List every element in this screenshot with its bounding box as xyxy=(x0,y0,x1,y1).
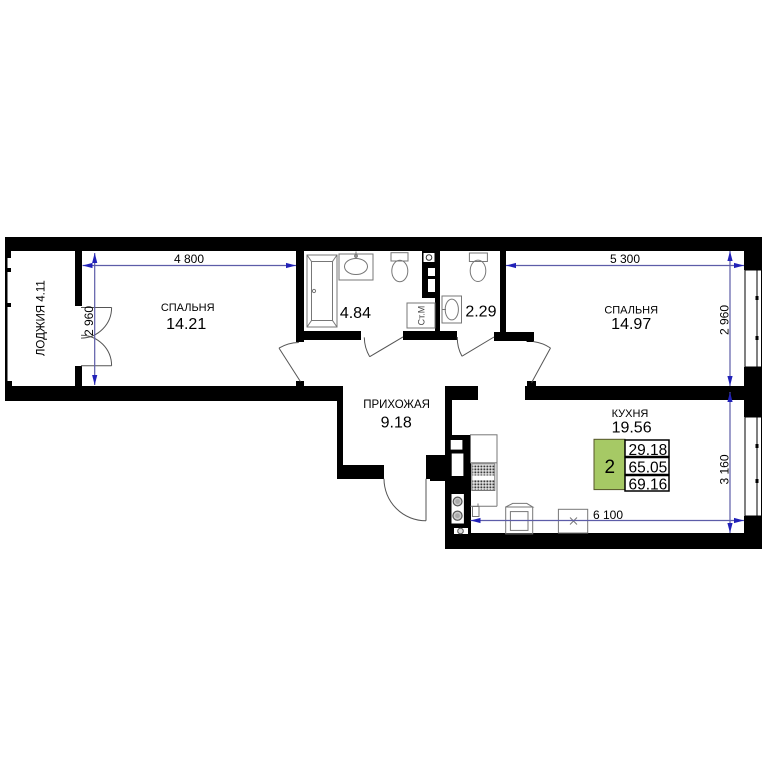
svg-text:2.29: 2.29 xyxy=(465,304,496,321)
svg-text:2: 2 xyxy=(605,457,616,478)
svg-text:2 960: 2 960 xyxy=(82,306,96,336)
svg-text:Ст.М: Ст.М xyxy=(417,306,427,326)
svg-text:14.97: 14.97 xyxy=(611,316,651,333)
svg-text:4.84: 4.84 xyxy=(340,305,371,322)
svg-text:9.18: 9.18 xyxy=(381,414,412,431)
svg-text:2 960: 2 960 xyxy=(718,305,732,335)
svg-text:14.21: 14.21 xyxy=(166,316,206,333)
svg-text:5 300: 5 300 xyxy=(610,252,640,266)
svg-text:6 100: 6 100 xyxy=(593,508,623,522)
svg-text:3 160: 3 160 xyxy=(718,454,732,484)
svg-text:29.18: 29.18 xyxy=(629,442,668,459)
svg-text:4 800: 4 800 xyxy=(174,252,204,266)
svg-text:СПАЛЬНЯ: СПАЛЬНЯ xyxy=(161,302,215,314)
svg-text:65.05: 65.05 xyxy=(629,460,668,477)
svg-text:69.16: 69.16 xyxy=(629,477,668,494)
svg-text:СПАЛЬНЯ: СПАЛЬНЯ xyxy=(604,304,658,316)
svg-text:ПРИХОЖАЯ: ПРИХОЖАЯ xyxy=(363,399,430,411)
svg-text:ЛОДЖИЯ 4.11: ЛОДЖИЯ 4.11 xyxy=(35,280,47,356)
svg-text:КУХНЯ: КУХНЯ xyxy=(612,408,649,420)
svg-text:19.56: 19.56 xyxy=(612,419,652,436)
